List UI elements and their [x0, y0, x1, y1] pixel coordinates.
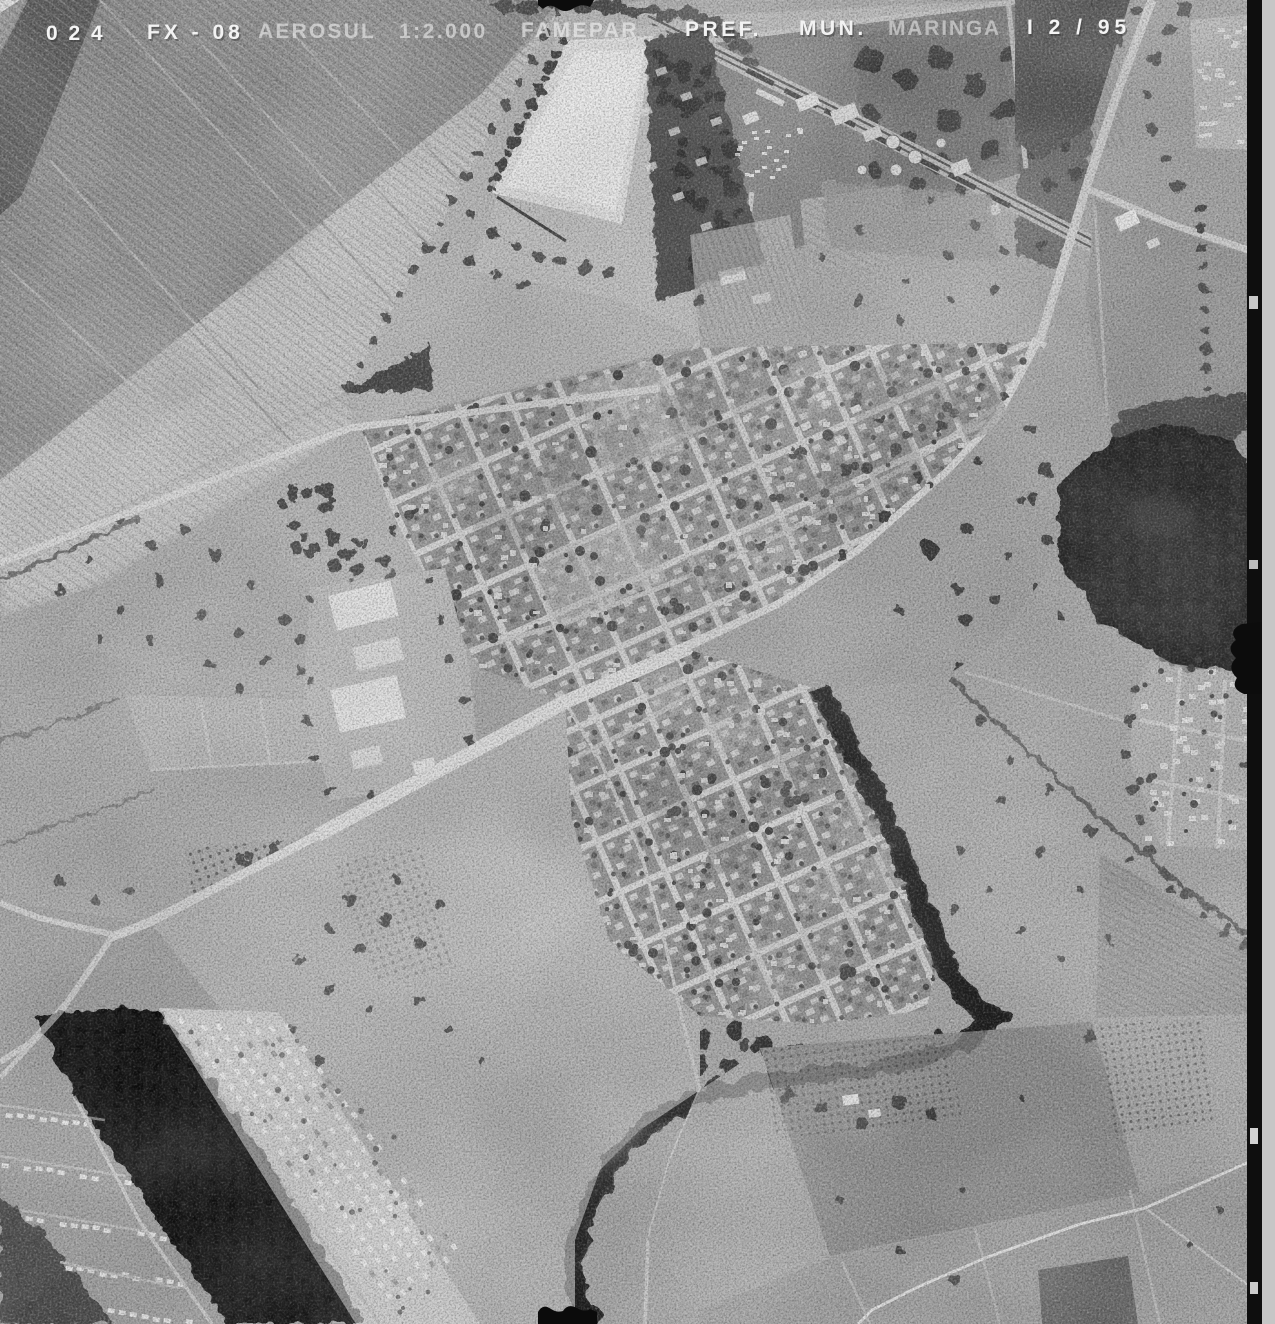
svg-text:I 2 / 95: I 2 / 95: [1027, 16, 1131, 39]
svg-text:FX - 08: FX - 08: [147, 21, 244, 44]
svg-text:MUN.: MUN.: [799, 17, 867, 40]
svg-text:AEROSUL: AEROSUL: [258, 20, 376, 43]
svg-text:PREF.: PREF.: [685, 18, 762, 41]
svg-text:FAMEPAR: FAMEPAR: [521, 19, 639, 42]
svg-text:0 2 4: 0 2 4: [46, 22, 105, 45]
svg-text:MARINGA: MARINGA: [888, 17, 1001, 40]
svg-text:1:2.000: 1:2.000: [399, 20, 488, 43]
